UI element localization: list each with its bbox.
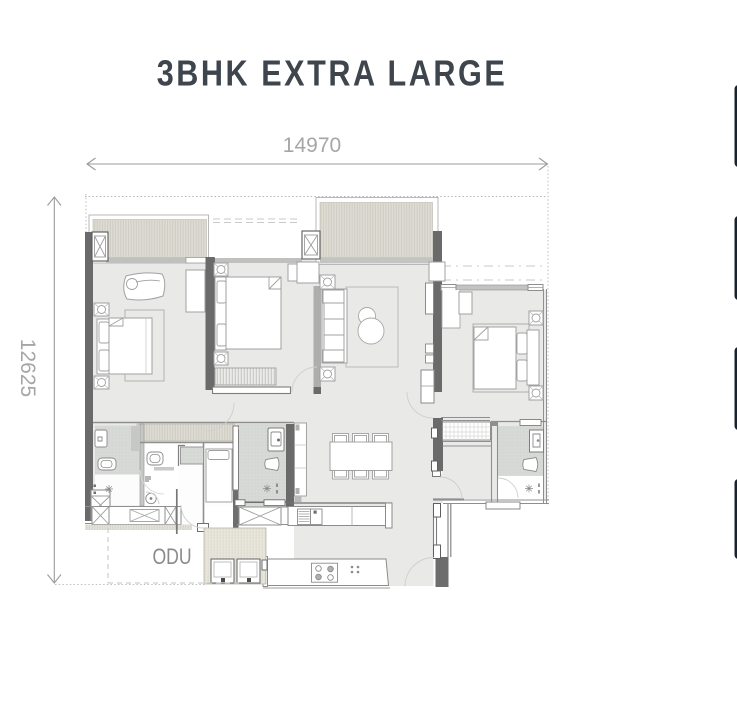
svg-text:ODU: ODU: [152, 545, 191, 569]
svg-text:14970: 14970: [283, 134, 341, 157]
svg-text:3BHK EXTRA LARGE: 3BHK EXTRA LARGE: [157, 54, 508, 94]
svg-text:12625: 12625: [16, 339, 39, 397]
